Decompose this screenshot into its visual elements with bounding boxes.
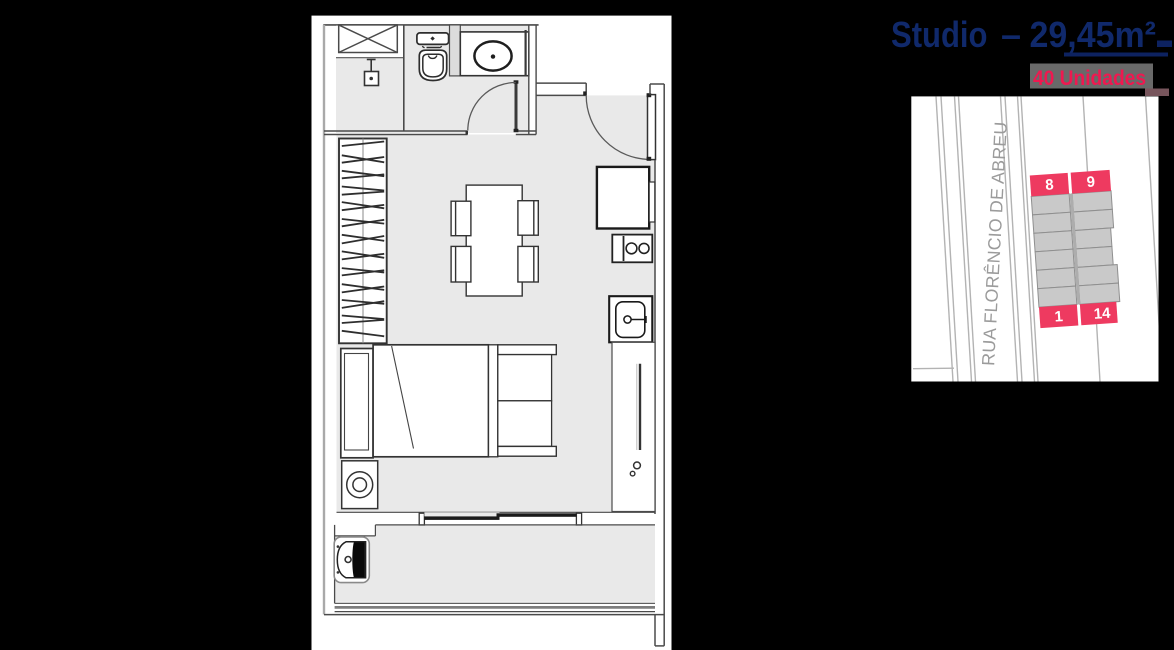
svg-text:1: 1	[1054, 308, 1064, 326]
svg-text:Studio: Studio	[891, 14, 988, 55]
svg-text:–: –	[1001, 14, 1021, 55]
svg-text:29,45m²: 29,45m²	[1030, 14, 1157, 55]
svg-text:14: 14	[1093, 305, 1111, 323]
svg-text:40 Unidades: 40 Unidades	[1033, 67, 1146, 90]
svg-text:8: 8	[1045, 176, 1055, 194]
svg-text:9: 9	[1086, 173, 1096, 191]
